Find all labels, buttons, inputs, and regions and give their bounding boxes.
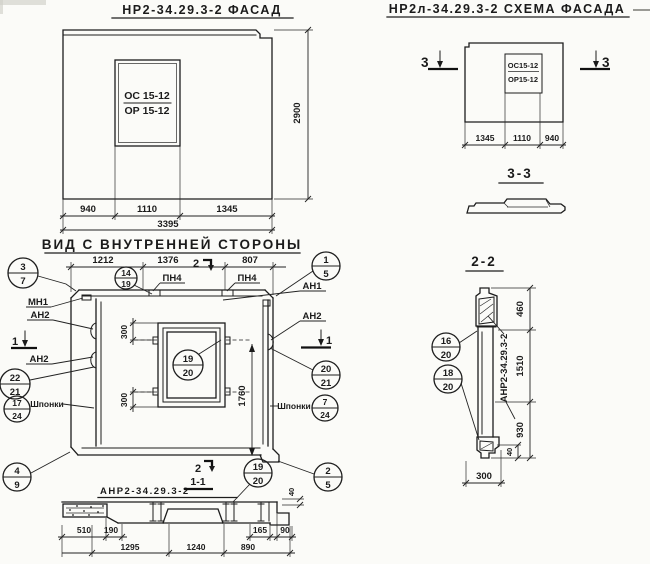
section-mark-3-left: 3 [421, 51, 458, 70]
inner-view-title: ВИД С ВНУТРЕННЕЙ СТОРОНЫ [42, 237, 303, 252]
label-an2-right: АН2 [302, 311, 321, 322]
callout-17-24: 17 24 [4, 396, 30, 422]
label-pn4-left: ПН4 [163, 273, 183, 284]
section-1-1-profile [62, 502, 289, 525]
label-an2-left-bottom: АН2 [29, 354, 48, 365]
section-2-2-label: АНР2-34.29.3-2 [499, 334, 510, 403]
callout-18-20: 18 20 [434, 365, 479, 440]
svg-text:5: 5 [323, 269, 329, 280]
callout-4-9: 4 9 [3, 452, 70, 491]
facade-dim-1345: 1345 [216, 204, 238, 215]
dim-40: 40 [287, 488, 296, 496]
schema-dim-940: 940 [545, 133, 559, 143]
svg-text:9: 9 [14, 480, 19, 491]
svg-text:7: 7 [20, 276, 25, 287]
section-mark-3-right: 3 [580, 51, 610, 70]
facade-dim-1110: 1110 [137, 204, 157, 215]
callout-2-5: 2 5 [278, 461, 342, 491]
section-1-1: АНР2-34.29.3-2 1-1 [58, 476, 304, 557]
callout-22-21: 22 21 [0, 367, 94, 399]
svg-text:4: 4 [14, 466, 20, 477]
facade-dim-940: 940 [80, 204, 96, 215]
dim-1240: 1240 [187, 542, 206, 552]
section-mark-1-left: 1 [11, 331, 37, 348]
section-1-1-label: АНР2-34.29.3-2 [100, 486, 190, 497]
dim-40-sec22: 40 [505, 448, 514, 456]
drawing-canvas: НР2-34.29.3-2 ФАСАД ОС 15-12 ОР 15-12 94… [0, 0, 650, 564]
facade-title: НР2-34.29.3-2 ФАСАД [122, 3, 281, 17]
callout-3-7: 3 7 [8, 258, 76, 291]
schema-dim-1345: 1345 [476, 133, 495, 143]
schema-dim-1110: 1110 [513, 133, 531, 143]
svg-text:2: 2 [193, 258, 199, 270]
svg-text:19: 19 [253, 462, 264, 473]
label-an2-left-top: АН2 [30, 310, 49, 321]
facade-view: НР2-34.29.3-2 ФАСАД ОС 15-12 ОР 15-12 94… [60, 3, 313, 234]
callout-19-20-section: 19 20 [244, 459, 272, 487]
anchor-loop [91, 352, 96, 368]
dim-165: 165 [253, 525, 267, 535]
svg-text:18: 18 [443, 368, 454, 379]
svg-text:17: 17 [12, 398, 22, 408]
scan-artifact [0, 0, 3, 14]
label-shponki-left: Шпонки [30, 399, 63, 409]
svg-text:19: 19 [121, 279, 131, 289]
dim-190: 190 [104, 525, 118, 535]
anchor-loop [91, 323, 96, 339]
inner-panel-outline [71, 290, 279, 462]
facade-dim-total: 3395 [157, 219, 179, 230]
label-mn1: МН1 [28, 297, 49, 308]
svg-text:22: 22 [10, 373, 21, 384]
inner-dim-1376: 1376 [157, 255, 178, 266]
svg-text:24: 24 [12, 411, 22, 421]
svg-text:5: 5 [325, 480, 331, 491]
callout-19-20-window: 19 20 [173, 340, 221, 380]
inner-dim-300-bottom: 300 [119, 393, 129, 407]
section-mark-2-top: 2 [193, 258, 214, 271]
facade-window-mark-top: ОС 15-12 [124, 90, 170, 102]
schema-title: НР2л-34.29.3-2 СХЕМА ФАСАДА [389, 2, 626, 16]
section-mark-2-bottom: 2 [195, 461, 215, 475]
inner-dim-1760: 1760 [237, 385, 248, 406]
inner-dim-1212: 1212 [92, 255, 113, 266]
label-an1: АН1 [302, 281, 322, 292]
svg-text:3: 3 [20, 262, 25, 273]
svg-text:19: 19 [183, 354, 194, 365]
svg-text:14: 14 [121, 268, 131, 278]
schema-window-mark-top: ОС15-12 [508, 61, 538, 70]
svg-text:1: 1 [323, 255, 329, 266]
svg-text:20: 20 [441, 350, 452, 361]
callout-20-21: 20 21 [270, 348, 340, 389]
section-2-2-title: 2-2 [471, 254, 497, 269]
dim-300: 300 [476, 471, 492, 482]
svg-text:1: 1 [12, 336, 18, 348]
section-2-2-profile [476, 288, 499, 458]
scan-artifact [0, 0, 46, 5]
section-mark-1-right: 1 [301, 330, 332, 348]
svg-text:20: 20 [253, 476, 264, 487]
svg-text:16: 16 [441, 336, 452, 347]
section-2-2: 2-2 АНР2-34.29.3-2 460 151 [462, 254, 536, 487]
label-pn4-right: ПН4 [238, 273, 258, 284]
schema-view: НР2л-34.29.3-2 СХЕМА ФАСАДА ОС15-12 ОР15… [387, 2, 629, 213]
facade-window-mark-bottom: ОР 15-12 [125, 105, 170, 117]
dim-890: 890 [241, 542, 255, 552]
svg-text:20: 20 [443, 382, 454, 393]
dim-1510: 1510 [515, 355, 526, 376]
dim-1295: 1295 [121, 542, 140, 552]
label-shponki-right: Шпонки [277, 401, 310, 411]
inner-dim-300-top: 300 [119, 325, 129, 339]
inner-view: ВИД С ВНУТРЕННЕЙ СТОРОНЫ [11, 237, 332, 475]
svg-text:2: 2 [195, 463, 201, 475]
svg-text:1: 1 [326, 335, 332, 347]
svg-text:3: 3 [421, 55, 429, 70]
svg-text:2: 2 [325, 466, 330, 477]
inner-dim-807: 807 [242, 255, 258, 266]
svg-text:3: 3 [602, 55, 610, 70]
svg-text:21: 21 [321, 378, 332, 389]
callout-7-24: 7 24 [312, 395, 338, 421]
dim-460: 460 [515, 301, 526, 317]
facade-dim-height: 2900 [292, 102, 303, 123]
svg-text:20: 20 [321, 364, 332, 375]
dim-510: 510 [77, 525, 91, 535]
svg-text:24: 24 [320, 410, 330, 420]
section-1-1-title: 1-1 [190, 476, 205, 488]
callout-16-20: 16 20 [432, 331, 477, 361]
drawing-sheet: НР2-34.29.3-2 ФАСАД ОС 15-12 ОР 15-12 94… [0, 0, 650, 564]
schema-window-opening [505, 54, 542, 93]
dim-930: 930 [515, 422, 526, 438]
svg-text:7: 7 [323, 397, 328, 407]
svg-text:20: 20 [183, 368, 194, 379]
schema-window-mark-bottom: ОР15-12 [508, 75, 538, 84]
dim-90: 90 [280, 525, 290, 535]
section-3-3-profile [467, 199, 565, 213]
section-3-3-title: 3-3 [507, 166, 533, 181]
